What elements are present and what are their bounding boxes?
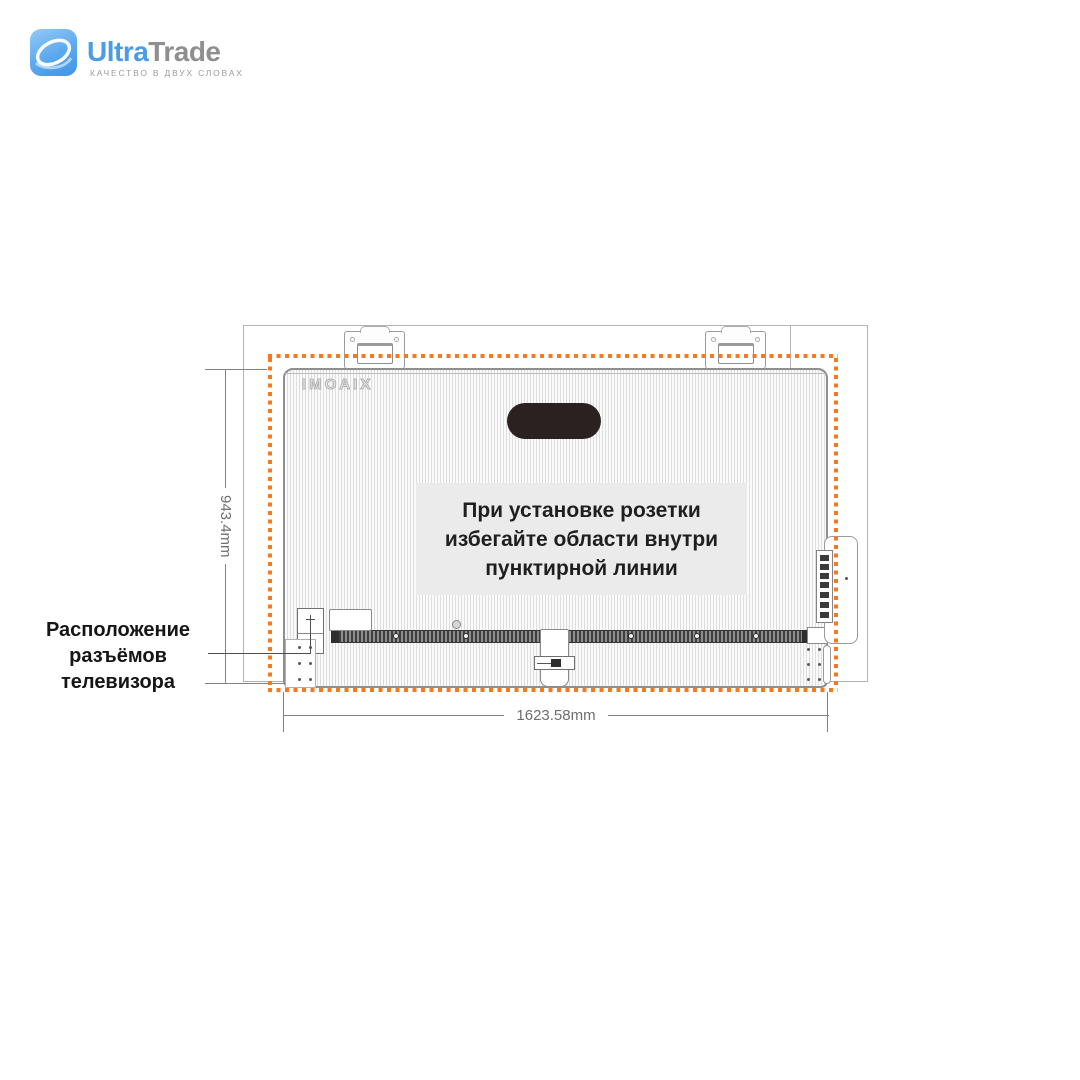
connector-location-label: Расположение разъёмов телевизора [28, 617, 208, 695]
screw-dot-icon [298, 646, 301, 649]
product-diagram-page: UltraTrade КАЧЕСТВО В ДВУХ СЛОВАХ XIAOMI… [0, 0, 1080, 1080]
bracket-slot [357, 343, 393, 364]
port-icon [820, 555, 829, 561]
rail-screw-icon [753, 633, 759, 639]
connector-label-line-3: телевизора [28, 669, 208, 695]
right-slot [823, 645, 831, 684]
port-icon [820, 564, 829, 570]
bracket-slot [718, 343, 754, 364]
left-cover-plate [329, 609, 372, 631]
ports-strip [816, 550, 833, 623]
bracket-tab [360, 326, 390, 333]
bracket-screw-icon [711, 337, 716, 342]
notice-line-2: избегайте области внутри [416, 525, 747, 554]
tv-handle-cutout [507, 403, 601, 439]
port-icon [820, 602, 829, 608]
brand-name-trade: Trade [148, 36, 220, 67]
bracket-screw-icon [394, 337, 399, 342]
port-icon [820, 592, 829, 598]
rail-screw-icon [694, 633, 700, 639]
height-dimension: 943.4mm [217, 369, 234, 683]
brand-name: UltraTrade [87, 36, 221, 68]
notice-line-3: пунктирной линии [416, 554, 747, 583]
width-dimension: 1623.58mm [283, 703, 829, 727]
height-dim-tick-top [205, 369, 267, 370]
bracket-tab [721, 326, 751, 333]
notice-line-1: При установке розетки [416, 496, 747, 525]
xiaomi-logo-mirrored: XIAOMI [299, 376, 370, 393]
height-dimension-label: 943.4mm [217, 495, 234, 558]
mount-bracket-right [705, 331, 766, 369]
rail-screw-icon [463, 633, 469, 639]
rail-screw-icon [628, 633, 634, 639]
dimension-line [608, 715, 829, 716]
screw-dot-icon [298, 678, 301, 681]
tv-top-edge-line [285, 373, 826, 374]
screw-dot-icon [807, 678, 810, 681]
width-dimension-label: 1623.58mm [516, 707, 595, 724]
bottom-vent-rail [331, 630, 810, 643]
width-dim-tick-left [283, 692, 284, 732]
rail-end-cap [331, 630, 339, 643]
screw-dot-icon [807, 648, 810, 651]
connector-leader-line [208, 653, 311, 654]
mount-bracket-left [344, 331, 405, 369]
screw-dot-icon [818, 663, 821, 666]
brand-tagline: КАЧЕСТВО В ДВУХ СЛОВАХ [90, 68, 244, 78]
bracket-screw-icon [350, 337, 355, 342]
panel-screw-dot-icon [845, 577, 848, 580]
swirl-globe-icon [30, 29, 77, 76]
keep-out-border-bottom [268, 688, 838, 692]
brand-name-ultra: Ultra [87, 36, 148, 67]
rail-screw-icon [393, 633, 399, 639]
screw-dot-icon [807, 663, 810, 666]
screw-hole-icon [452, 620, 461, 629]
dimension-line [283, 715, 504, 716]
ultratrade-logo-icon [30, 29, 77, 76]
screw-dot-icon [818, 648, 821, 651]
connector-leader-elbow [310, 620, 311, 654]
connector-label-line-1: Расположение [28, 617, 208, 643]
wall-divider-line [790, 325, 791, 369]
dimension-line [225, 369, 226, 488]
connector-label-line-2: разъёмов [28, 643, 208, 669]
tv-rear-body: XIAOMI При установке розетки избегайте о… [283, 368, 828, 688]
stand-connector-port [551, 659, 561, 667]
port-icon [820, 573, 829, 579]
stand-connector [534, 656, 575, 670]
width-dim-tick-right [827, 692, 828, 732]
screw-dot-icon [818, 678, 821, 681]
port-icon [820, 582, 829, 588]
screw-dot-icon [309, 662, 312, 665]
port-icon [820, 612, 829, 618]
screw-dot-icon [309, 678, 312, 681]
dimension-line [225, 564, 226, 683]
connector-target-cross-icon [310, 615, 311, 624]
stand-connector-line [537, 663, 551, 664]
keep-out-notice: При установке розетки избегайте области … [416, 483, 747, 595]
height-dim-tick-bottom [205, 683, 285, 684]
bracket-screw-icon [755, 337, 760, 342]
screw-dot-icon [298, 662, 301, 665]
